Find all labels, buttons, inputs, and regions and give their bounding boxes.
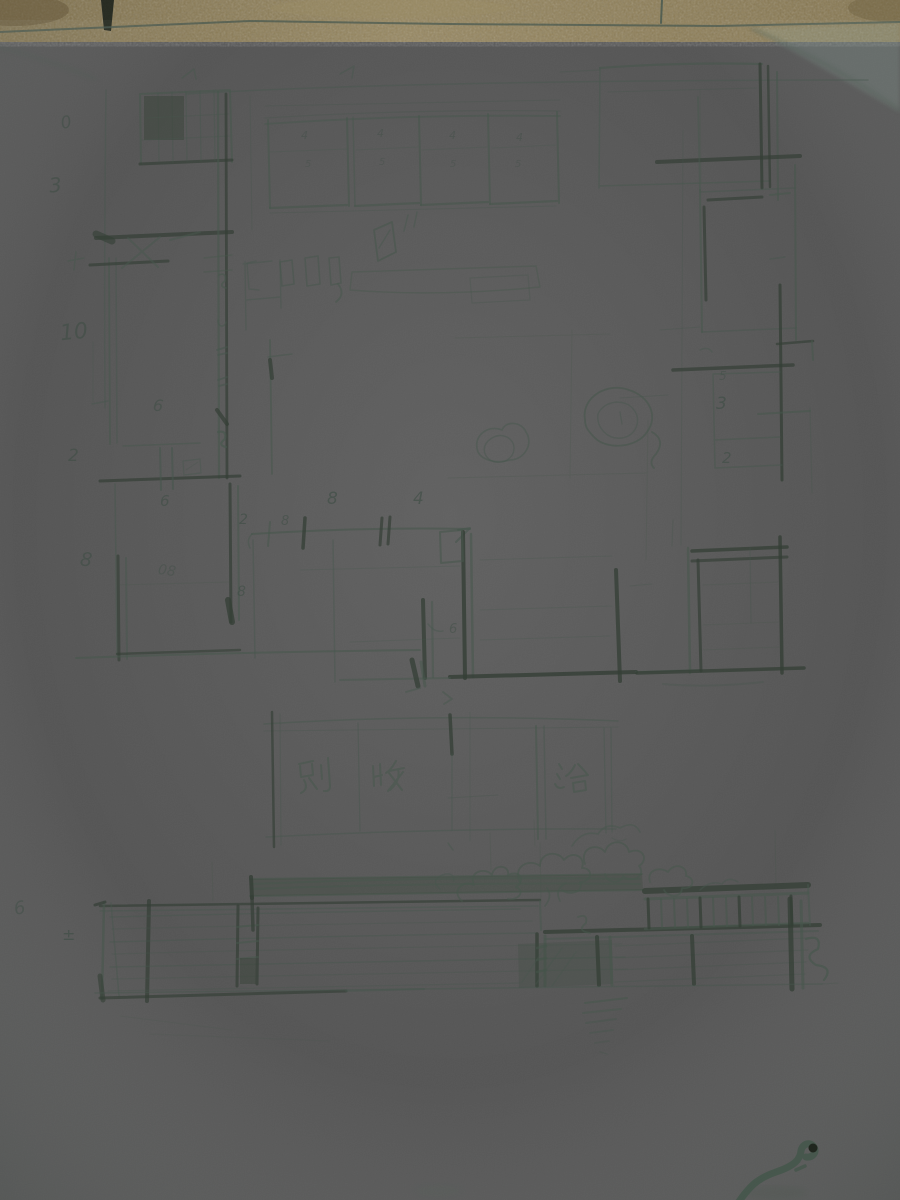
wire-tip <box>809 1144 818 1153</box>
sketch-scene <box>0 0 900 1200</box>
paper-smudge <box>414 1184 462 1198</box>
photo-of-architectural-sketch: 0310286±660828848644445555532 <box>0 0 900 1200</box>
table-seam <box>661 0 662 23</box>
paper-sheet <box>0 20 900 1200</box>
